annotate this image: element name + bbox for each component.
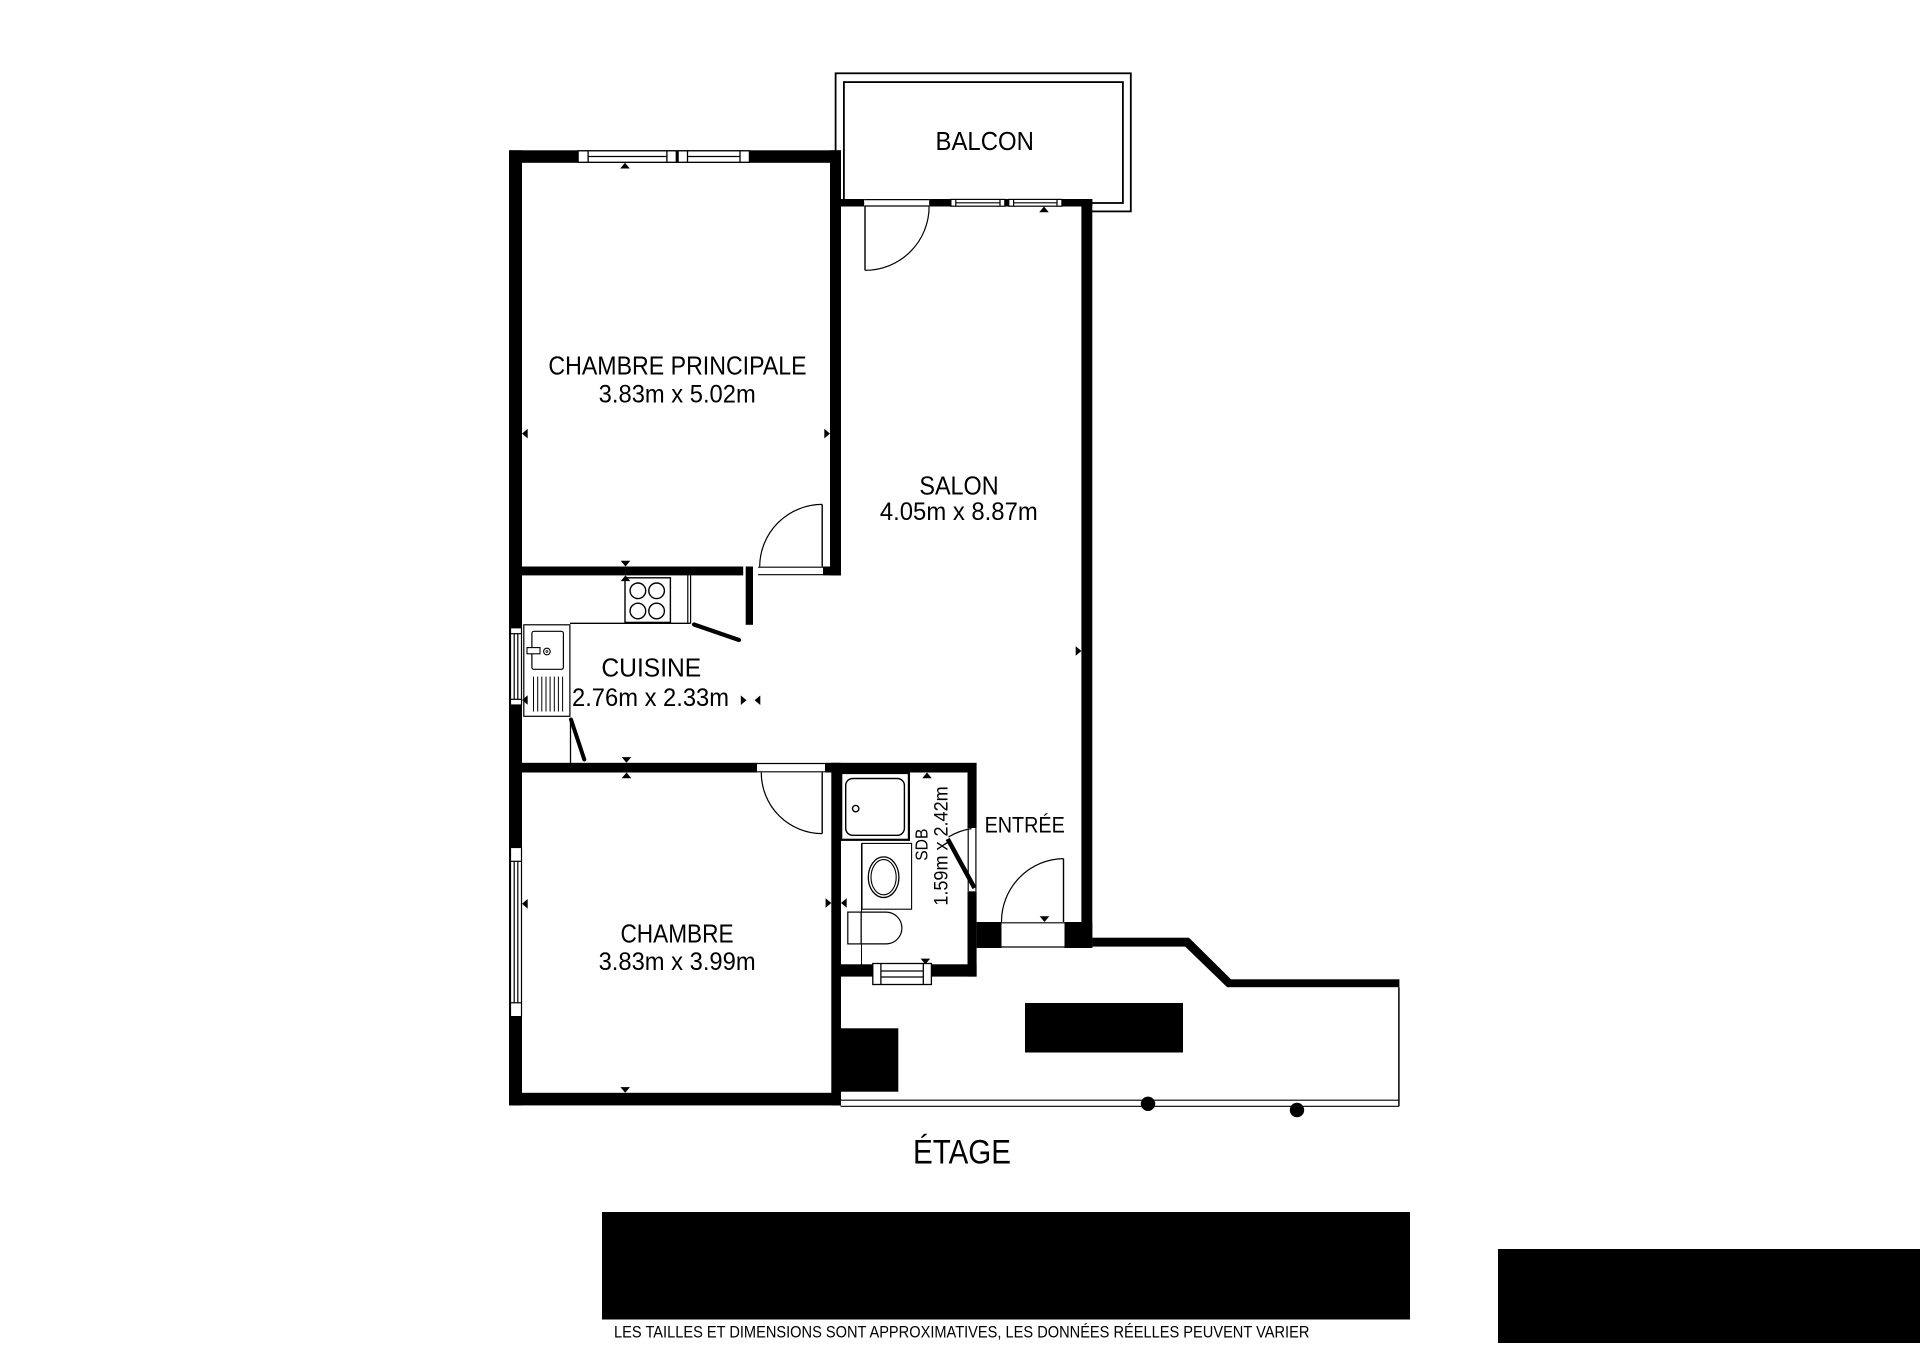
svg-text:LES TAILLES ET DIMENSIONS SONT: LES TAILLES ET DIMENSIONS SONT APPROXIMA… [614,1321,1309,1341]
svg-text:CHAMBRE PRINCIPALE: CHAMBRE PRINCIPALE [548,352,806,381]
svg-text:BALCON: BALCON [936,127,1034,156]
svg-text:4.05m x 8.87m: 4.05m x 8.87m [880,499,1038,527]
svg-text:SDB: SDB [911,829,931,861]
svg-text:CHAMBRE: CHAMBRE [620,920,733,949]
svg-text:3.83m x 5.02m: 3.83m x 5.02m [599,381,756,409]
svg-text:CUISINE: CUISINE [601,654,701,683]
svg-text:1.59m x 2.42m: 1.59m x 2.42m [930,786,952,905]
svg-text:ENTRÉE: ENTRÉE [985,814,1065,838]
svg-text:SALON: SALON [919,472,998,500]
svg-text:ÉTAGE: ÉTAGE [913,1132,1011,1170]
svg-text:2.76m x 2.33m: 2.76m x 2.33m [572,684,729,712]
svg-text:3.83m x 3.99m: 3.83m x 3.99m [599,949,756,977]
